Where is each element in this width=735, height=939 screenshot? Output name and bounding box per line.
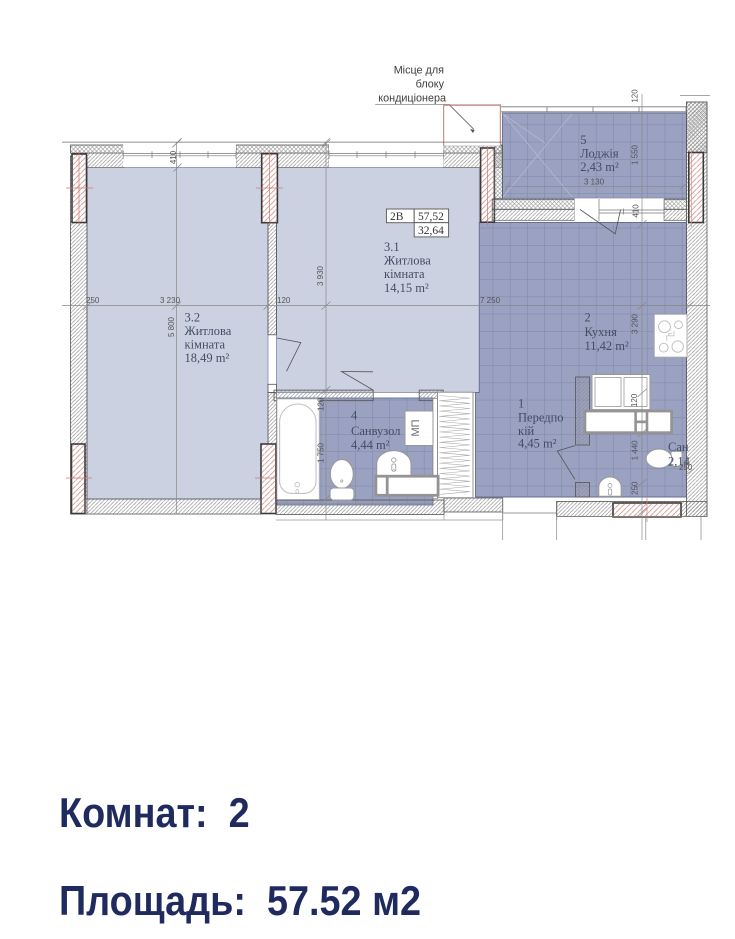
svg-text:2,14: 2,14 <box>668 455 691 469</box>
svg-text:кондиціонера: кондиціонера <box>378 93 446 105</box>
svg-text:7 250: 7 250 <box>480 296 501 305</box>
svg-text:3.2: 3.2 <box>185 311 201 325</box>
svg-text:11,42 m²: 11,42 m² <box>585 339 630 353</box>
svg-text:Сан: Сан <box>668 440 689 454</box>
svg-text:Передпо: Передпо <box>518 410 564 424</box>
svg-text:32,64: 32,64 <box>418 225 444 237</box>
svg-text:МП: МП <box>410 419 422 436</box>
svg-text:4,45 m²: 4,45 m² <box>518 437 557 451</box>
svg-text:250: 250 <box>86 296 100 305</box>
svg-text:120: 120 <box>630 393 639 407</box>
svg-text:57,52: 57,52 <box>418 211 444 223</box>
svg-text:3 130: 3 130 <box>584 178 605 187</box>
svg-text:3.1: 3.1 <box>384 240 400 254</box>
svg-text:120: 120 <box>631 89 640 103</box>
svg-text:1 750: 1 750 <box>317 442 326 463</box>
svg-text:2В: 2В <box>390 211 404 223</box>
svg-text:1 550: 1 550 <box>631 144 640 165</box>
svg-text:Місце для: Місце для <box>394 65 444 77</box>
svg-text:250: 250 <box>631 481 640 495</box>
svg-text:3 290: 3 290 <box>631 313 640 334</box>
svg-text:5 800: 5 800 <box>167 316 176 337</box>
svg-text:кімната: кімната <box>185 338 226 352</box>
svg-text:2: 2 <box>585 311 591 325</box>
svg-text:5: 5 <box>580 133 586 147</box>
svg-text:Житлова: Житлова <box>185 324 232 338</box>
svg-text:4,44 m²: 4,44 m² <box>351 438 390 452</box>
svg-text:410: 410 <box>169 150 178 164</box>
svg-text:120: 120 <box>317 397 326 411</box>
svg-text:2,43 m²: 2,43 m² <box>580 160 619 174</box>
svg-text:кімната: кімната <box>384 267 425 281</box>
svg-text:блоку: блоку <box>416 79 445 91</box>
svg-text:18,49 m²: 18,49 m² <box>185 351 230 365</box>
svg-text:3 230: 3 230 <box>160 296 181 305</box>
svg-text:120: 120 <box>277 296 291 305</box>
svg-text:410: 410 <box>631 204 640 218</box>
svg-text:1: 1 <box>518 397 524 411</box>
svg-text:Кухня: Кухня <box>585 325 618 339</box>
svg-text:Лоджія: Лоджія <box>580 147 619 161</box>
svg-text:3 930: 3 930 <box>316 265 325 286</box>
svg-text:1 440: 1 440 <box>631 440 640 461</box>
svg-text:Санвузол: Санвузол <box>351 424 401 438</box>
svg-text:Житлова: Житлова <box>384 254 431 268</box>
svg-text:4: 4 <box>351 409 358 423</box>
svg-text:14,15 m²: 14,15 m² <box>384 281 429 295</box>
